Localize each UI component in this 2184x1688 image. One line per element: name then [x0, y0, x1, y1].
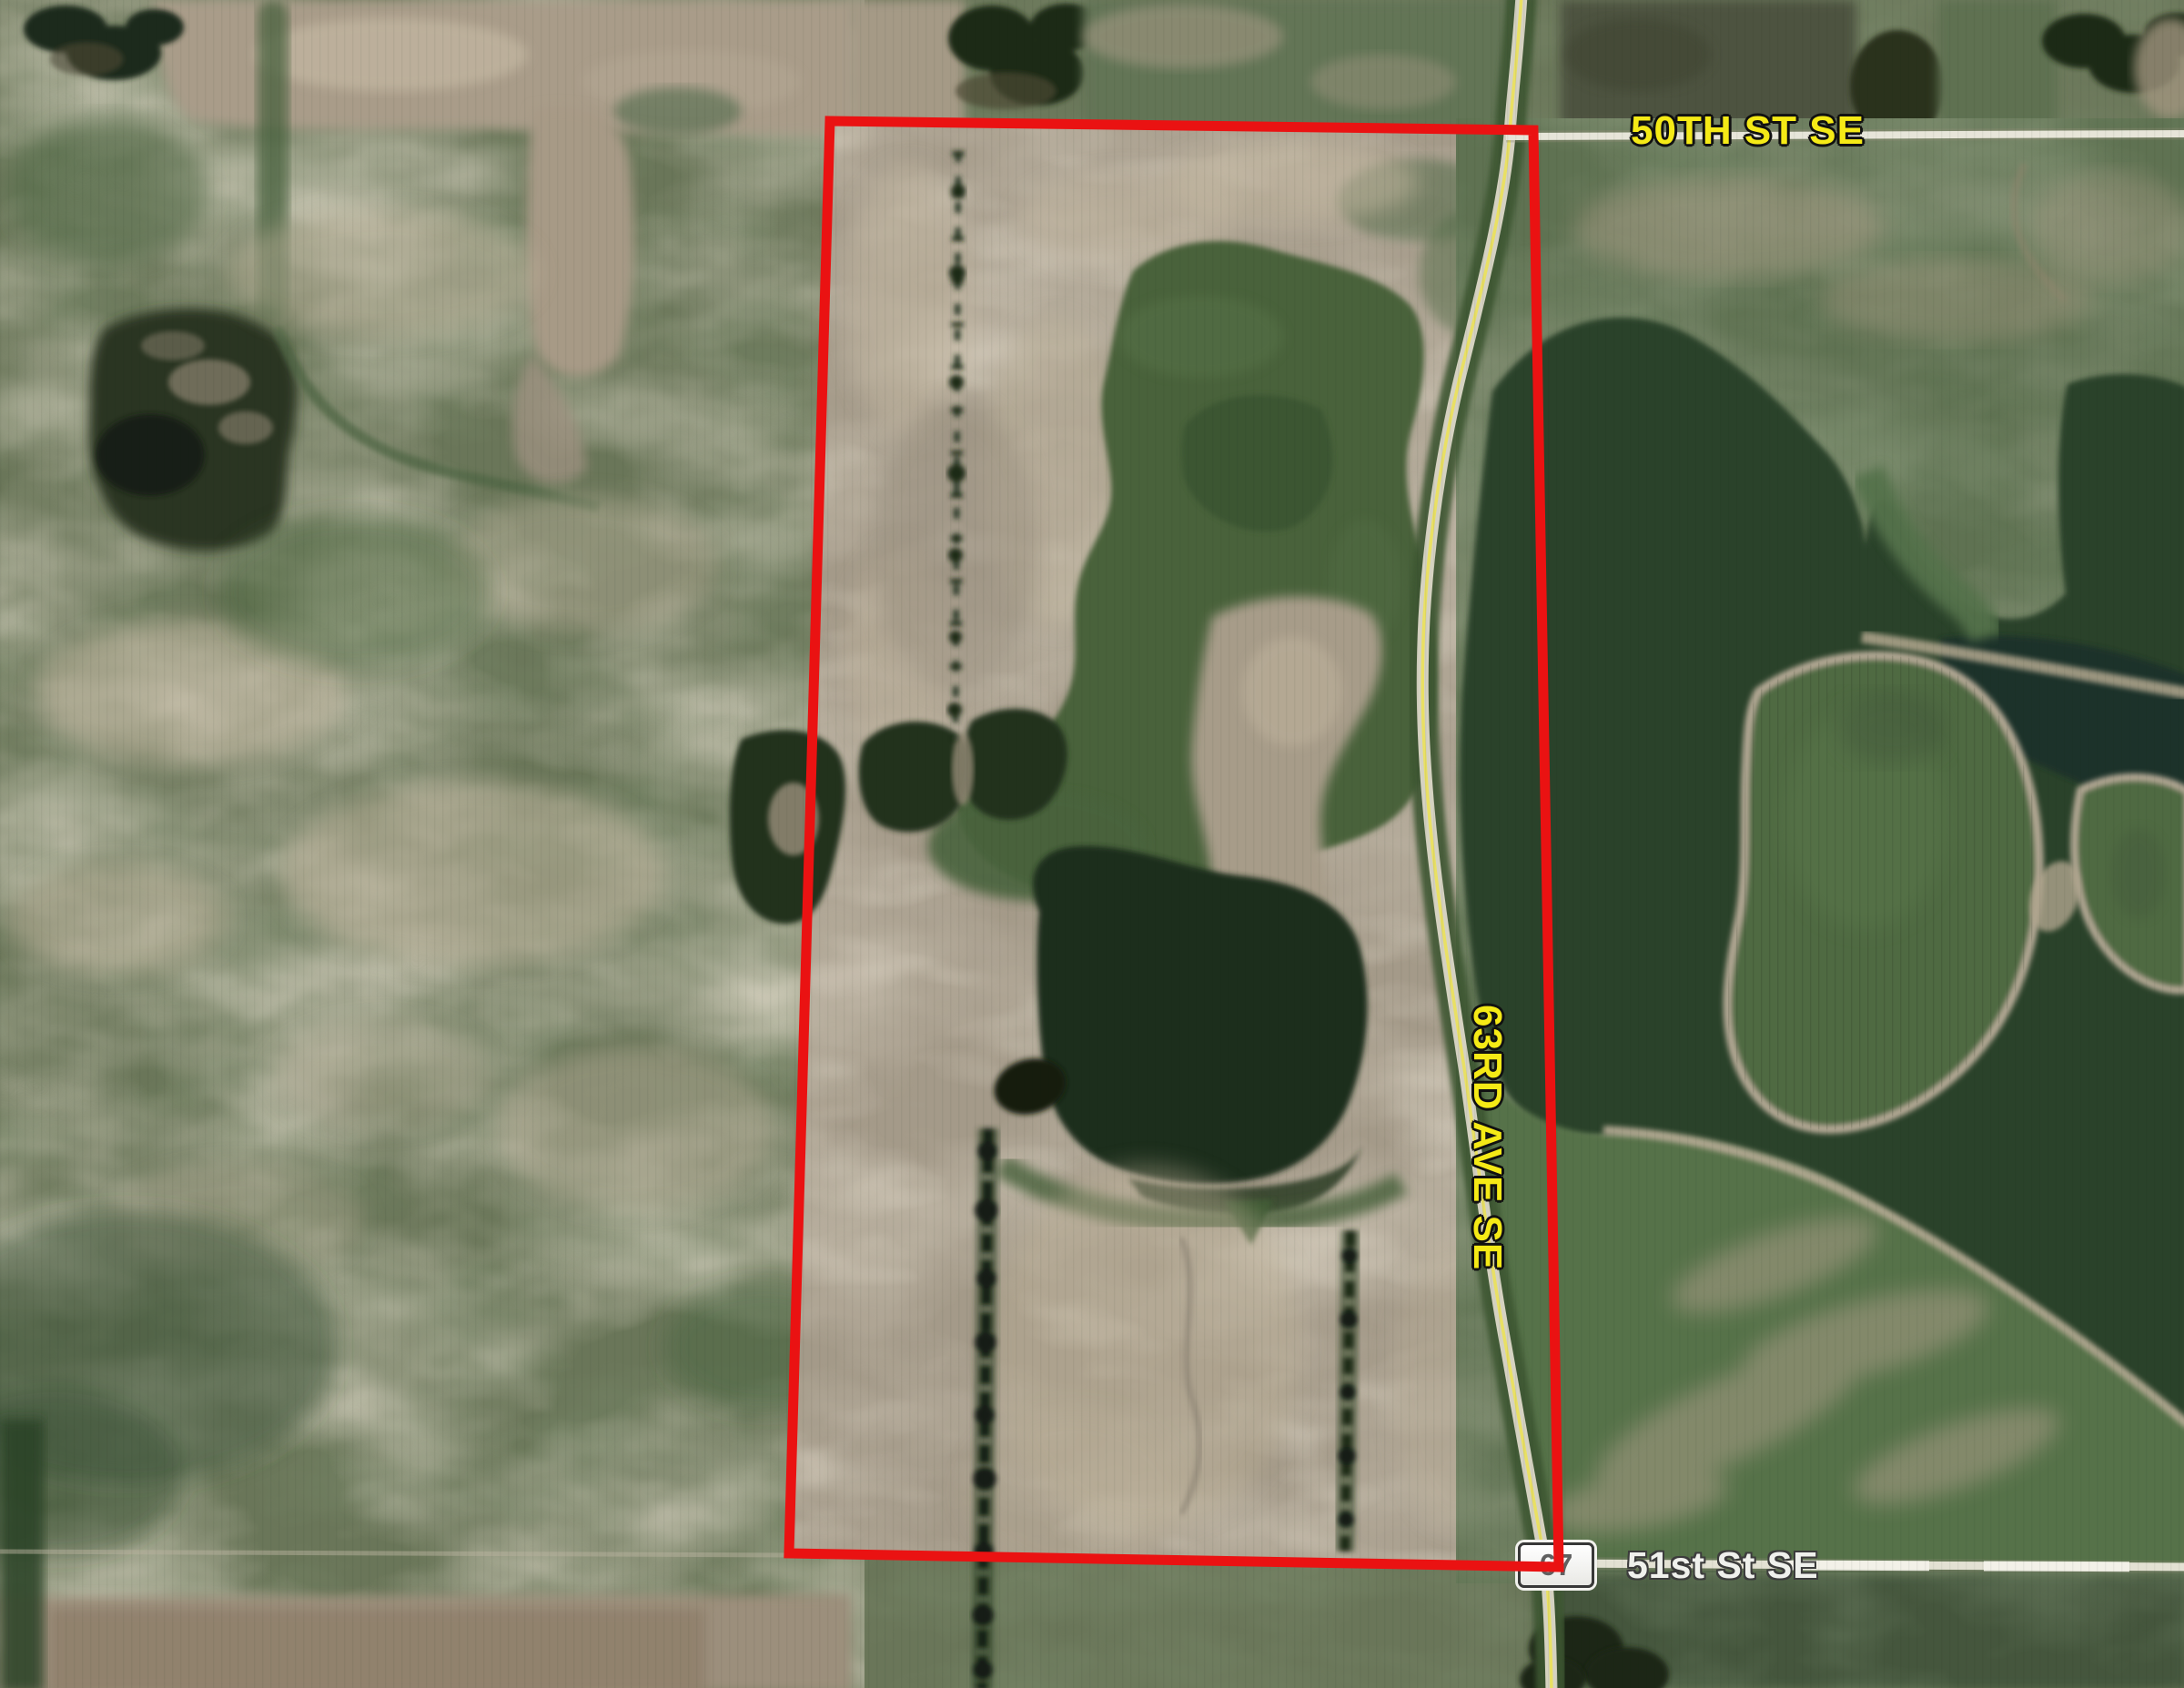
plow-striations — [0, 0, 2184, 1688]
road-label-50th-st: 50TH ST SE — [1631, 111, 1865, 151]
route-67-shield: 67 — [1518, 1542, 1594, 1588]
road-label-51st-st: 51st St SE — [1627, 1547, 1819, 1584]
route-67-number: 67 — [1540, 1548, 1573, 1582]
road-label-63rd-ave: 63RD AVE SE — [1467, 1005, 1507, 1270]
satellite-map[interactable]: 50TH ST SE 63RD AVE SE 51st St SE 67 — [0, 0, 2184, 1688]
satellite-imagery — [0, 0, 2184, 1688]
